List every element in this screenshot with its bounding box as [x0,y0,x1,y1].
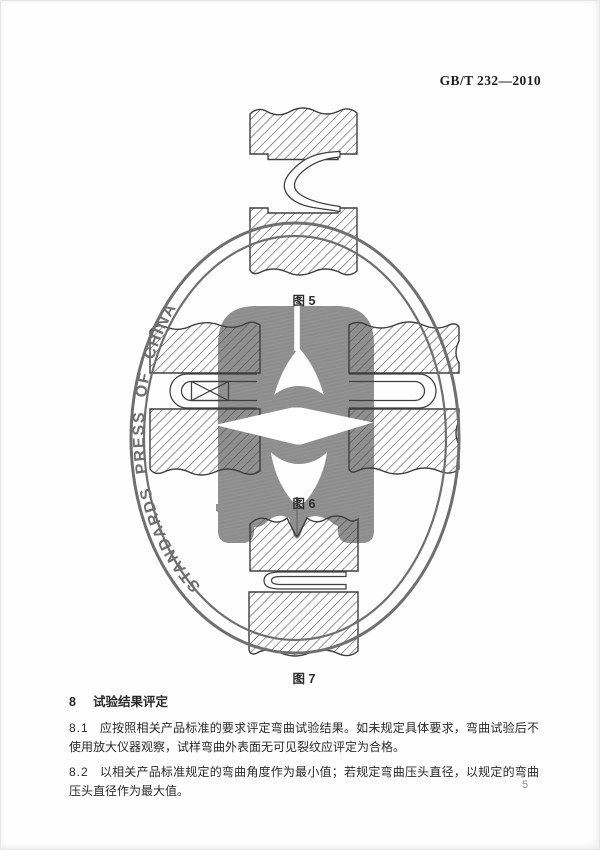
figure-5-caption: 图 5 [293,294,316,308]
document-page: GB/T 232—2010 [0,0,600,850]
clause-8-2: 8.2以相关产品标准规定的弯曲角度作为最小值；若规定弯曲压头直径，以规定的弯曲压… [69,763,539,801]
page-number: 5 [522,779,528,791]
section-heading: 8试验结果评定 [69,691,539,710]
section-number: 8 [69,695,76,709]
fig6-right-lower-block [349,409,459,474]
figure-5-drawing [250,108,357,275]
clause-text: 以相关产品标准规定的弯曲角度作为最小值；若规定弯曲压头直径，以规定的弯曲压头直径… [69,765,539,798]
fig5-lower-block [250,208,357,275]
clause-number: 8.1 [69,721,89,735]
clause-section: 8试验结果评定 8.1应按照相关产品标准的要求评定弯曲试验结果。如未规定具体要求… [69,691,539,807]
section-title: 试验结果评定 [93,695,168,709]
fig7-lower-block [249,592,358,656]
emblem-center-gap [294,306,300,351]
clause-text: 应按照相关产品标准的要求评定弯曲试验结果。如未规定具体要求，弯曲试验后不使用放大… [69,721,539,754]
fig7-upper-block [250,516,358,571]
fig5-upper-block [250,108,357,160]
clause-8-1: 8.1应按照相关产品标准的要求评定弯曲试验结果。如未规定具体要求，弯曲试验后不使… [69,719,539,757]
figure-6-caption: 图 6 [293,497,316,511]
fig5-bent-specimen [284,152,340,212]
figure-7-caption: 图 7 [293,672,316,686]
fig7-hairpin-specimen [264,572,346,589]
clause-number: 8.2 [69,765,89,779]
